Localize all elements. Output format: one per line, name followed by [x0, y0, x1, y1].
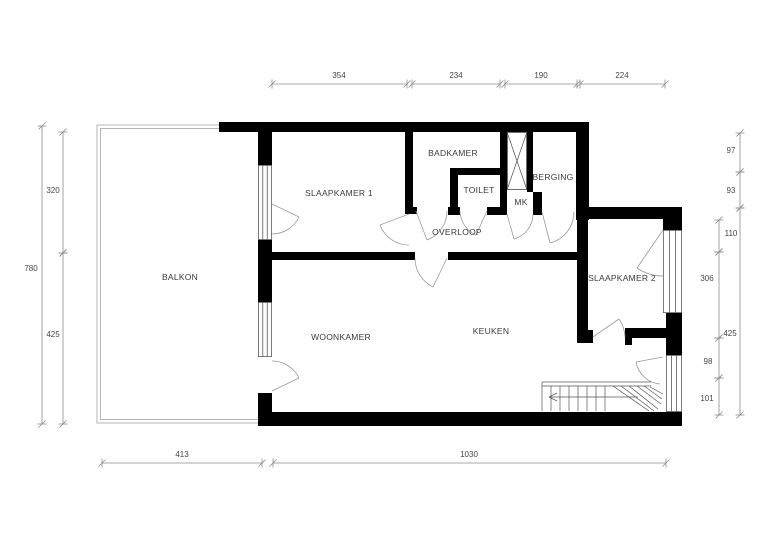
- dimension-value: 306: [700, 274, 714, 283]
- room-label: BADKAMER: [428, 148, 478, 158]
- stair-line: [613, 386, 649, 411]
- wall: [666, 313, 682, 355]
- wall: [450, 168, 507, 175]
- wall: [258, 412, 682, 426]
- room-label: SLAAPKAMER 2: [588, 273, 656, 283]
- dimension-value: 780: [24, 264, 38, 273]
- wall: [405, 132, 413, 213]
- dimension-value: 98: [704, 357, 713, 366]
- dimension-value: 425: [723, 329, 737, 338]
- door-leaf: [433, 258, 447, 287]
- door-arc: [272, 361, 299, 378]
- door-arc: [380, 225, 409, 245]
- dimension-value: 413: [175, 450, 189, 459]
- dimension-value: 354: [332, 71, 346, 80]
- wall: [533, 192, 542, 215]
- door-arc: [636, 362, 660, 384]
- window-opening: [666, 355, 682, 412]
- room-label: SLAAPKAMER 1: [305, 188, 373, 198]
- stair-line: [650, 387, 663, 394]
- wall: [258, 122, 272, 165]
- dimension-value: 224: [615, 71, 629, 80]
- window-opening: [663, 230, 682, 313]
- staircase: [542, 382, 663, 411]
- wall: [527, 130, 533, 192]
- dimension-value: 110: [725, 229, 738, 238]
- dimension-value: 320: [46, 186, 60, 195]
- wall: [577, 330, 593, 343]
- door-arc: [514, 214, 533, 239]
- door-arc: [550, 212, 574, 243]
- room-label: TOILET: [463, 185, 494, 195]
- door-leaf: [416, 211, 427, 240]
- room-label: KEUKEN: [473, 326, 509, 336]
- wall: [576, 122, 589, 220]
- room-label: BALKON: [162, 272, 198, 282]
- door-leaf: [593, 319, 619, 337]
- dimension-value: 97: [727, 146, 736, 155]
- dimension-value: 234: [449, 71, 463, 80]
- door-leaf: [542, 212, 550, 243]
- door-leaf: [272, 378, 299, 391]
- room-label: MK: [514, 197, 527, 207]
- door-leaf: [272, 204, 299, 217]
- windows: [258, 165, 682, 412]
- room-label: BERGING: [533, 172, 574, 182]
- door-leaf: [637, 230, 663, 268]
- wall: [258, 393, 272, 426]
- wall: [405, 207, 417, 214]
- dimension-value: 101: [700, 394, 714, 403]
- floor-plan-drawing: 3542341902244131030780320425979342511030…: [0, 0, 768, 543]
- stair-line: [644, 386, 662, 399]
- floor-plan-page: 3542341902244131030780320425979342511030…: [0, 0, 768, 543]
- wall: [448, 252, 577, 260]
- wall: [487, 207, 500, 215]
- shaft: [507, 132, 527, 190]
- window-opening: [258, 302, 272, 357]
- door-arc: [619, 319, 625, 337]
- door-leaf: [507, 214, 514, 239]
- dimension-value: 425: [46, 330, 60, 339]
- wall: [577, 207, 588, 343]
- door-leaf: [380, 214, 409, 225]
- dimension-value: 1030: [460, 450, 478, 459]
- wall: [266, 252, 415, 260]
- wall: [663, 207, 682, 230]
- door-arc: [272, 217, 299, 234]
- door-leaf: [636, 357, 663, 362]
- wall: [258, 240, 272, 302]
- wall: [500, 130, 507, 215]
- stair-line: [629, 386, 658, 409]
- door-arc: [415, 258, 433, 287]
- stair-line: [549, 393, 557, 397]
- wall: [632, 328, 667, 338]
- stair-line: [549, 397, 557, 401]
- wall: [448, 207, 460, 215]
- window-opening: [258, 165, 272, 240]
- room-label: WOONKAMER: [311, 332, 371, 342]
- wall: [625, 328, 632, 345]
- dimension-value: 93: [727, 186, 736, 195]
- room-label: OVERLOOP: [432, 227, 482, 237]
- dimension-value: 190: [534, 71, 548, 80]
